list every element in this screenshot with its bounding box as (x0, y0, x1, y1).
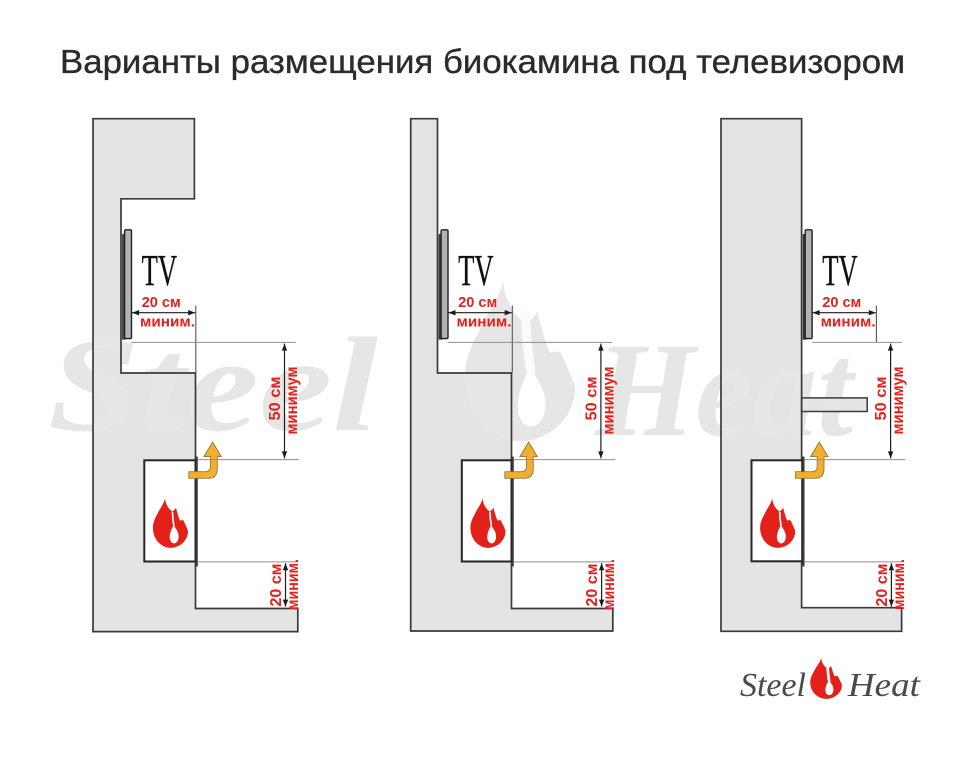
svg-text:миним.: миним. (140, 315, 195, 331)
svg-text:миним.: миним. (457, 315, 512, 331)
svg-text:минимум: минимум (601, 367, 618, 435)
svg-text:TV: TV (822, 246, 858, 295)
svg-text:50 см: 50 см (584, 377, 601, 421)
svg-text:Steel: Steel (740, 667, 806, 704)
svg-text:Heat: Heat (847, 667, 922, 704)
svg-text:миним.: миним. (601, 559, 618, 610)
svg-text:миним.: миним. (821, 315, 876, 331)
svg-text:Варианты размещения биокамина: Варианты размещения биокамина под телеви… (60, 44, 905, 81)
svg-text:миним.: миним. (891, 559, 908, 610)
svg-text:минимум: минимум (890, 367, 907, 435)
svg-text:20 см: 20 см (584, 564, 601, 607)
svg-text:20 см: 20 см (874, 564, 891, 607)
svg-text:50 см: 50 см (873, 377, 890, 421)
svg-text:50 см: 50 см (267, 377, 284, 421)
svg-text:минимум: минимум (284, 367, 301, 435)
svg-text:TV: TV (458, 246, 494, 295)
svg-text:20 см: 20 см (458, 295, 497, 311)
svg-text:Heat: Heat (594, 316, 856, 465)
svg-text:20 см: 20 см (268, 564, 285, 607)
svg-text:Steel: Steel (48, 311, 379, 460)
svg-text:20 см: 20 см (142, 295, 181, 311)
svg-text:20 см: 20 см (822, 295, 861, 311)
svg-text:TV: TV (142, 246, 178, 295)
svg-text:миним.: миним. (285, 559, 302, 610)
